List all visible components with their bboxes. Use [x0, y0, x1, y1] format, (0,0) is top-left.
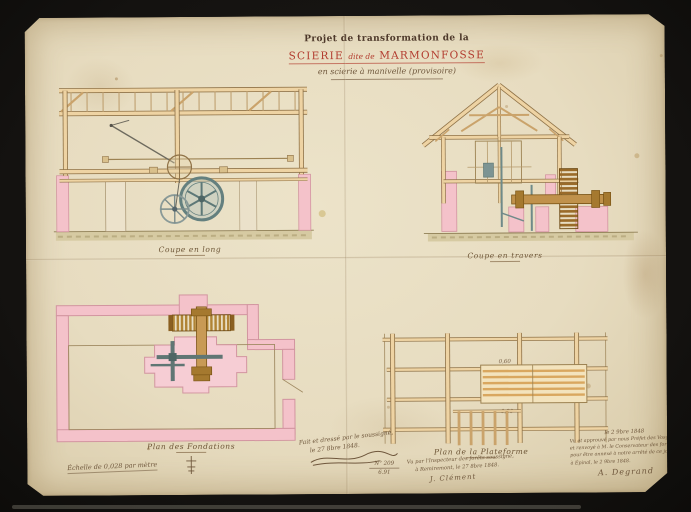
crank-linkage-rod — [110, 120, 175, 163]
pulley-wheel — [167, 155, 191, 179]
coupe-en-travers-drawing — [423, 80, 639, 243]
vertical-fold-crease — [344, 16, 349, 494]
title-scierie: SCIERIE — [289, 50, 344, 62]
drawing-sheet: Projet de transformation de la SCIERIE d… — [25, 14, 668, 496]
prefect-approval-block: le 2 9bre 1848 Vu et approuvé par nous P… — [569, 426, 681, 480]
caption-rule — [490, 261, 520, 262]
door-swing-line — [283, 379, 303, 392]
saw-guide-rail — [102, 155, 293, 162]
scale-divider-mark — [183, 455, 199, 475]
saw-carriage-planks: 0,60 0,30 — [481, 359, 587, 416]
title-line-3: en scierie à manivelle (provisoire) — [287, 66, 487, 76]
caption-rule — [176, 452, 206, 453]
foxing-spots — [115, 77, 118, 80]
ground — [424, 232, 638, 241]
title-line-2: SCIERIE dite de MARMONFOSSE — [289, 49, 485, 64]
scanner-bed-edge — [12, 505, 581, 509]
title-marmonfosse: MARMONFOSSE — [379, 49, 485, 62]
caption-rule — [175, 255, 205, 256]
paper-stain — [622, 229, 669, 319]
large-flywheel — [181, 178, 223, 220]
title-underline — [331, 78, 443, 80]
caption-plan-des-fondations: Plan des Fondations — [111, 441, 271, 453]
photographed-archive-scan: Projet de transformation de la SCIERIE d… — [0, 0, 691, 512]
ground — [54, 230, 314, 241]
document-number: N° 209 6.91 — [369, 460, 399, 478]
wall-frame — [443, 137, 578, 204]
dimension-label-top: 0,60 — [499, 359, 512, 365]
coupe-en-long-drawing — [53, 82, 314, 246]
title-block: Projet de transformation de la SCIERIE d… — [287, 33, 487, 80]
caption-coupe-en-long: Coupe en long — [110, 244, 270, 256]
forest-inspector-visa: Vu par l'Inspecteur des forêts soussigné… — [407, 453, 520, 486]
plan-des-fondations-drawing — [54, 284, 317, 448]
title-dite-de: dite de — [348, 52, 374, 61]
roof-truss — [423, 85, 575, 146]
